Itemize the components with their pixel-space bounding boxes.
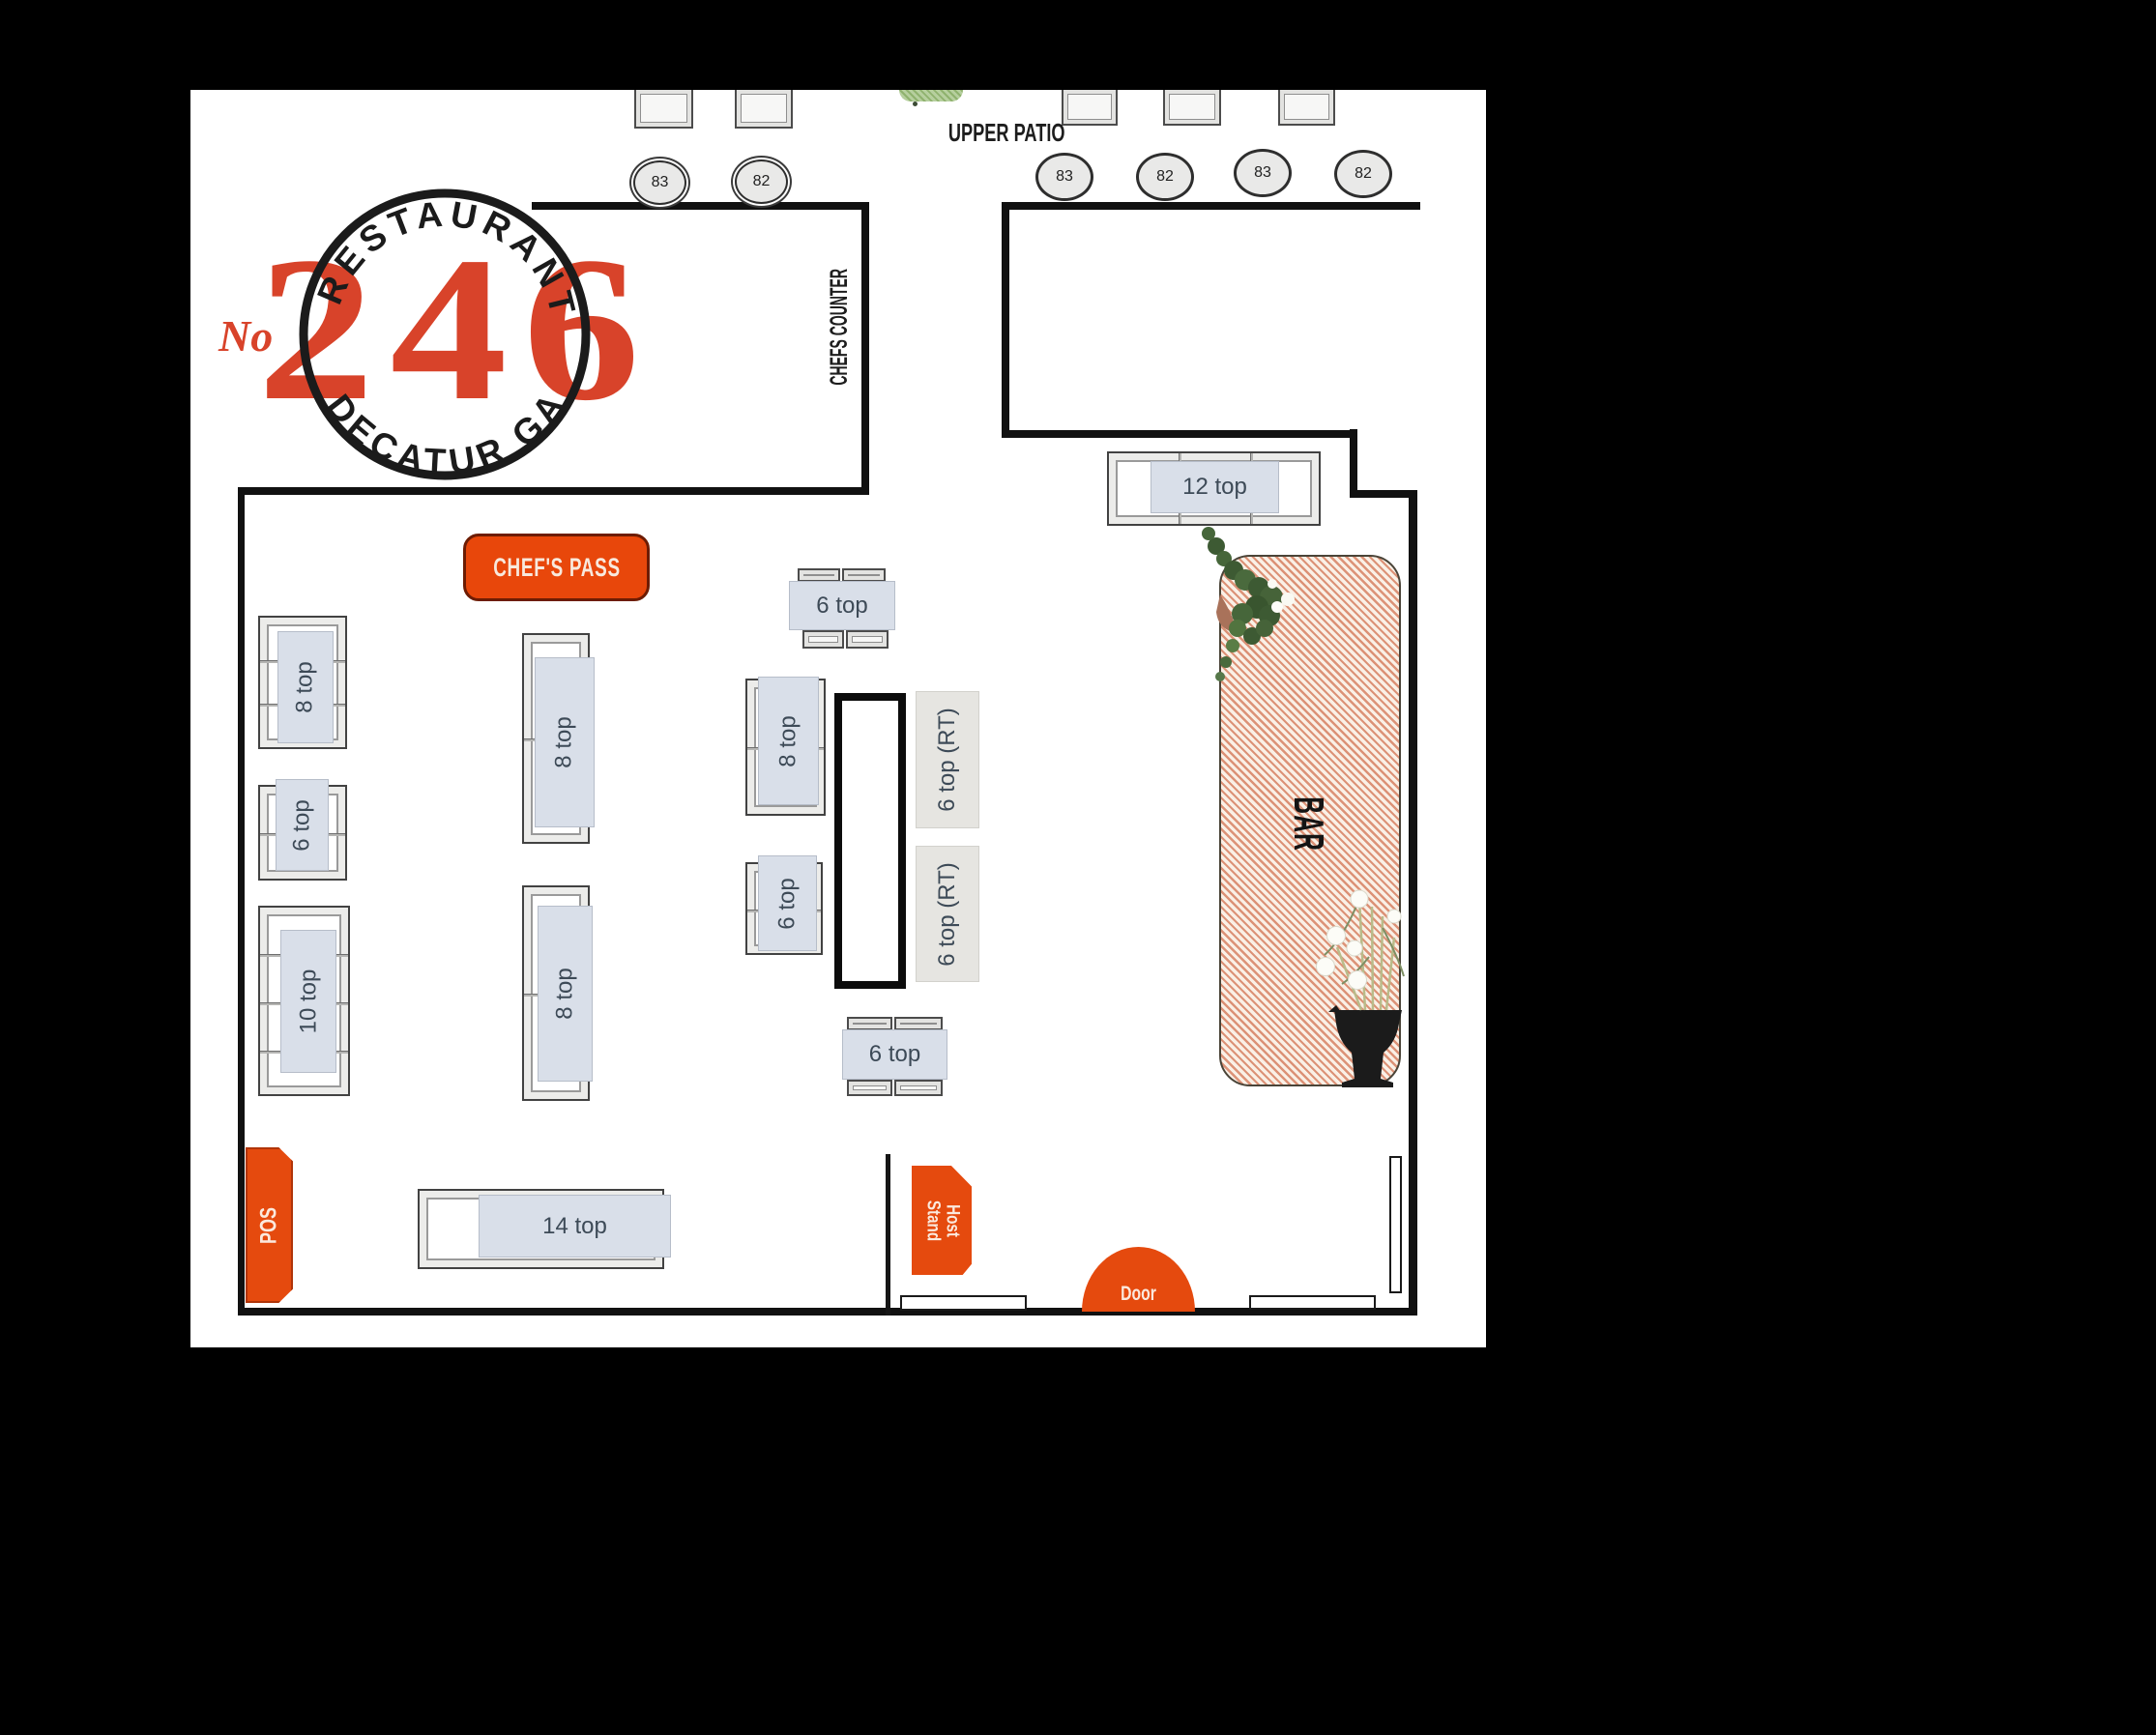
svg-text:DECATUR GA: DECATUR GA: [318, 382, 574, 481]
svg-text:RESTAURANT: RESTAURANT: [309, 193, 584, 323]
